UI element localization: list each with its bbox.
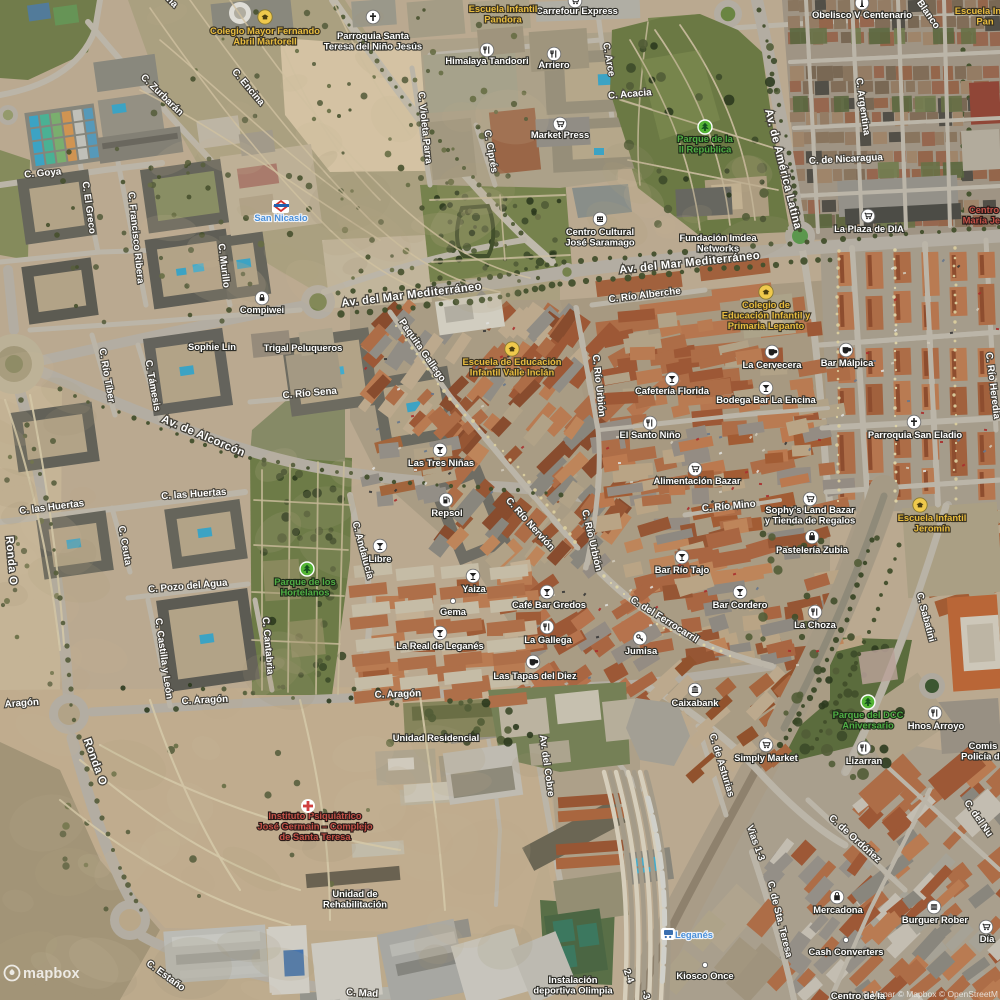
- svg-text:II República: II República: [679, 144, 732, 155]
- svg-text:Simply Market: Simply Market: [734, 752, 798, 763]
- svg-text:Burguer Rober: Burguer Rober: [902, 914, 969, 925]
- svg-text:Rehabilitación: Rehabilitación: [323, 899, 387, 910]
- svg-text:Las Tapas del Diez: Las Tapas del Diez: [493, 670, 577, 681]
- svg-text:Abril Martorell: Abril Martorell: [233, 36, 297, 47]
- svg-text:Kiosco Once: Kiosco Once: [676, 970, 733, 981]
- svg-text:Jeromín: Jeromín: [914, 523, 951, 534]
- svg-text:Parque del DCC: Parque del DCC: [833, 709, 904, 720]
- svg-text:Market Press: Market Press: [531, 129, 589, 140]
- svg-text:Unidad de: Unidad de: [332, 888, 377, 899]
- svg-text:Escuela Infantil: Escuela Infantil: [898, 512, 967, 523]
- svg-text:Parque de los: Parque de los: [274, 576, 335, 587]
- svg-text:Pan: Pan: [976, 16, 993, 27]
- svg-text:y Tienda de Regalos: y Tienda de Regalos: [765, 515, 855, 526]
- svg-text:Teresa del Niño Jesús: Teresa del Niño Jesús: [324, 41, 422, 52]
- svg-text:Primaria Lepanto: Primaria Lepanto: [728, 320, 805, 331]
- svg-text:deportiva Olimpia: deportiva Olimpia: [533, 985, 613, 996]
- svg-text:Parroquia Santa: Parroquia Santa: [337, 30, 410, 41]
- svg-text:Repsol: Repsol: [431, 507, 462, 518]
- svg-text:La Plaza de DIA: La Plaza de DIA: [834, 223, 904, 234]
- svg-text:Las Tres Niñas: Las Tres Niñas: [408, 457, 474, 468]
- svg-text:Himalaya Tandoori: Himalaya Tandoori: [445, 55, 528, 66]
- svg-text:José Saramago: José Saramago: [565, 237, 635, 248]
- svg-text:Escuela Infantil: Escuela Infantil: [469, 3, 538, 14]
- svg-text:Leganés: Leganés: [675, 929, 713, 940]
- svg-text:La Choza: La Choza: [794, 619, 836, 630]
- svg-text:Café Bar Gredos: Café Bar Gredos: [512, 599, 586, 610]
- svg-text:Yaiza: Yaiza: [462, 583, 486, 594]
- svg-text:Centro Cultural: Centro Cultural: [566, 226, 634, 237]
- svg-text:Pandora: Pandora: [484, 14, 522, 25]
- svg-text:Trigal Peluqueros: Trigal Peluqueros: [264, 342, 343, 353]
- svg-text:La Cervecera: La Cervecera: [743, 359, 803, 370]
- svg-text:Cash Converters: Cash Converters: [808, 946, 883, 957]
- svg-text:Colegio de: Colegio de: [742, 299, 790, 310]
- svg-text:Bar Río Tajo: Bar Río Tajo: [655, 564, 710, 575]
- svg-text:Instalación: Instalación: [549, 974, 598, 985]
- svg-text:La Gallega: La Gallega: [524, 634, 572, 645]
- svg-text:Jumisa: Jumisa: [625, 645, 658, 656]
- svg-text:Unidad Residencial: Unidad Residencial: [393, 732, 479, 743]
- svg-text:Obelisco V Centenario: Obelisco V Centenario: [812, 9, 912, 20]
- svg-text:Escuela de Educación: Escuela de Educación: [463, 356, 562, 367]
- svg-text:C. Aragón: C. Aragón: [375, 688, 422, 701]
- svg-text:Mercadona: Mercadona: [813, 904, 863, 915]
- svg-text:Bar Málpica: Bar Málpica: [821, 357, 874, 368]
- svg-text:Policía de: Policía de: [961, 751, 1000, 762]
- svg-text:Caixabank: Caixabank: [672, 697, 720, 708]
- svg-text:Alimentación Bazar: Alimentación Bazar: [653, 475, 740, 486]
- svg-text:Bar Cordero: Bar Cordero: [713, 599, 768, 610]
- svg-text:Fundación Imdea: Fundación Imdea: [679, 232, 757, 243]
- svg-text:Pastelería Zubia: Pastelería Zubia: [776, 544, 849, 555]
- svg-text:Día: Día: [980, 933, 995, 944]
- svg-text:C. Mad: C. Mad: [346, 987, 379, 1000]
- svg-text:mapbox: mapbox: [23, 966, 80, 982]
- svg-text:Cafetería Florida: Cafetería Florida: [635, 385, 710, 396]
- svg-text:Hortelanos: Hortelanos: [281, 587, 330, 598]
- svg-text:San Nicasio: San Nicasio: [254, 212, 307, 223]
- svg-text:Parque de la: Parque de la: [677, 133, 734, 144]
- svg-text:Bodega Bar La Encina: Bodega Bar La Encina: [716, 394, 816, 405]
- svg-text:Instituto Psiquiátrico: Instituto Psiquiátrico: [268, 810, 362, 821]
- svg-text:Hnos Arroyo: Hnos Arroyo: [908, 720, 965, 731]
- svg-text:Aniversario: Aniversario: [842, 720, 894, 731]
- svg-text:Parroquia San Eladio: Parroquia San Eladio: [868, 429, 963, 440]
- svg-text:Educación Infantil y: Educación Infantil y: [722, 310, 811, 321]
- svg-text:Lizarran: Lizarran: [846, 755, 883, 766]
- svg-text:Centro: Centro: [969, 204, 999, 215]
- svg-text:Sophy's Land Bazar: Sophy's Land Bazar: [765, 504, 855, 515]
- svg-text:Gema: Gema: [440, 606, 467, 617]
- svg-text:© Mapar © Mapbox © OpenStreetM: © Mapar © Mapbox © OpenStreetM: [863, 989, 998, 999]
- svg-text:Infantil Valle Inclán: Infantil Valle Inclán: [470, 367, 555, 378]
- svg-text:Escuela Infan: Escuela Infan: [955, 5, 1000, 16]
- svg-text:Colegio Mayor Fernando: Colegio Mayor Fernando: [210, 25, 320, 36]
- svg-text:Comis: Comis: [969, 740, 998, 751]
- svg-text:Arriero: Arriero: [538, 59, 570, 70]
- svg-text:La Real de Leganés: La Real de Leganés: [396, 640, 484, 651]
- svg-text:de Santa Teresa: de Santa Teresa: [279, 831, 351, 842]
- svg-text:Libre: Libre: [369, 553, 392, 564]
- svg-text:Sophie Lin: Sophie Lin: [188, 341, 236, 352]
- svg-text:Networks: Networks: [697, 243, 739, 254]
- svg-text:María Jes: María Jes: [963, 215, 1000, 226]
- svg-text:José Germain – Complejo: José Germain – Complejo: [257, 821, 372, 832]
- svg-text:El Santo Niño: El Santo Niño: [620, 429, 681, 440]
- svg-text:Compiwei: Compiwei: [240, 304, 284, 315]
- svg-text:Carrefour Express: Carrefour Express: [536, 5, 618, 16]
